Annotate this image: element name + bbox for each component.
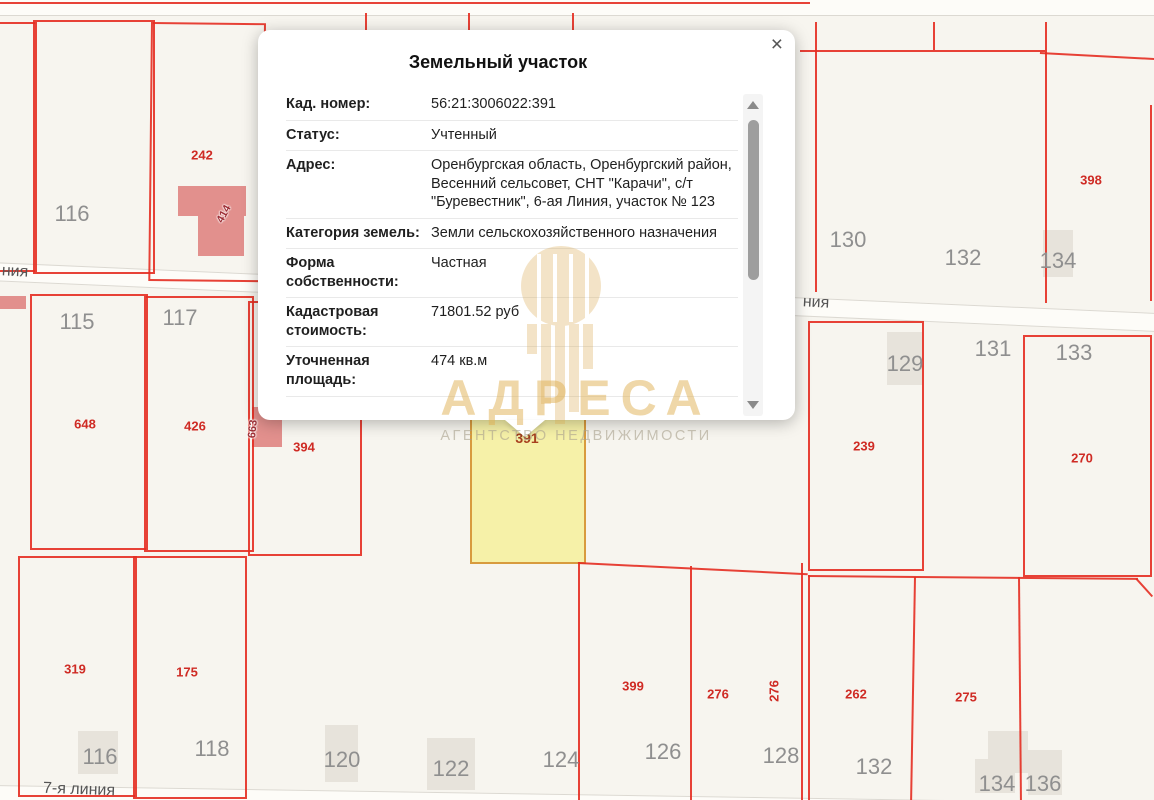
popup-fields: Кад. номер:56:21:3006022:391Статус:Учтен… <box>286 90 738 397</box>
parcel-number-gray: 134 <box>979 771 1016 797</box>
field-value: 474 кв.м <box>431 352 738 389</box>
popup-field-row: Адрес:Оренбургская область, Оренбургский… <box>286 151 738 219</box>
parcel-boundary <box>33 20 155 274</box>
parcel-boundary <box>468 13 470 30</box>
parcel-boundary <box>910 577 916 800</box>
field-label: Статус: <box>286 126 431 145</box>
parcel-boundary <box>18 556 137 797</box>
popup-field-row: Кадастровая стоимость:71801.52 руб <box>286 298 738 347</box>
parcel-number-red: 398 <box>1080 173 1102 188</box>
field-label: Кад. номер: <box>286 95 431 114</box>
scroll-up-icon[interactable] <box>747 101 759 109</box>
popup-field-row: Категория земель:Земли сельскохозяйствен… <box>286 219 738 250</box>
parcel-number-gray: 120 <box>324 747 361 773</box>
parcel-number-gray: 122 <box>433 756 470 782</box>
parcel-boundary <box>1150 105 1152 301</box>
field-label: Форма собственности: <box>286 254 431 291</box>
parcel-number-gray: 116 <box>82 744 117 770</box>
parcel-number-gray: 118 <box>194 736 229 762</box>
parcel-number-gray: 132 <box>945 245 982 271</box>
field-label: Кадастровая стоимость: <box>286 303 431 340</box>
parcel-number-gray: 126 <box>645 739 682 765</box>
field-label: Категория земель: <box>286 224 431 243</box>
field-value: 71801.52 руб <box>431 303 738 340</box>
parcel-number-red: 270 <box>1071 451 1093 466</box>
parcel-number-gray: 132 <box>856 754 893 780</box>
parcel-number-red: 426 <box>184 419 206 434</box>
parcel-boundary <box>815 22 817 292</box>
parcel-number-red: 262 <box>845 687 867 702</box>
parcel-number-red: 276 <box>707 687 729 702</box>
parcel-number-red: 275 <box>955 690 977 705</box>
parcel-info-popup: × Земельный участок Кад. номер:56:21:300… <box>258 30 795 420</box>
parcel-number-gray: 116 <box>54 201 89 227</box>
parcel-number-gray: 117 <box>162 305 197 331</box>
field-value: Частная <box>431 254 738 291</box>
parcel-boundary <box>1136 578 1154 597</box>
parcel-boundary <box>800 50 1045 52</box>
popup-field-row: Уточненная площадь:474 кв.м <box>286 347 738 396</box>
building-number: 663 <box>246 419 260 439</box>
parcel-number-gray: 134 <box>1040 248 1077 274</box>
field-value: Учтенный <box>431 126 738 145</box>
parcel-boundary <box>365 13 367 30</box>
parcel-boundary <box>0 2 810 4</box>
parcel-number-red: 648 <box>74 417 96 432</box>
parcel-number-red: 394 <box>293 440 315 455</box>
parcel-number-gray: 115 <box>59 309 94 335</box>
popup-field-row: Статус:Учтенный <box>286 121 738 152</box>
building-footprint <box>0 296 26 309</box>
field-label: Адрес: <box>286 156 431 212</box>
parcel-number-red: 242 <box>191 148 213 163</box>
parcel-number-gray: 136 <box>1025 771 1062 797</box>
parcel-boundary <box>801 563 803 800</box>
parcel-number-red: 319 <box>64 662 86 677</box>
parcel-number-gray: 124 <box>543 747 580 773</box>
parcel-boundary <box>572 13 574 30</box>
parcel-number-gray: 131 <box>975 336 1012 362</box>
parcel-number-red: 276 <box>767 680 782 702</box>
road-label: ния <box>1 262 28 281</box>
popup-title: Земельный участок <box>258 52 738 73</box>
parcel-boundary <box>933 22 935 50</box>
field-value: Земли сельскохозяйственного назначения <box>431 224 738 243</box>
parcel-number-gray: 129 <box>887 351 924 377</box>
parcel-boundary <box>1040 52 1154 60</box>
parcel-boundary <box>808 575 810 800</box>
road-label: 7-я линия <box>43 780 116 800</box>
parcel-number-red: 399 <box>622 679 644 694</box>
popup-pointer-tail <box>505 420 545 437</box>
parcel-number-gray: 133 <box>1056 340 1093 366</box>
parcel-number-red: 175 <box>176 665 198 680</box>
popup-scrollbar[interactable] <box>743 94 763 416</box>
field-value: 56:21:3006022:391 <box>431 95 738 114</box>
scroll-thumb[interactable] <box>748 120 759 280</box>
scroll-down-icon[interactable] <box>747 401 759 409</box>
parcel-number-gray: 130 <box>830 227 867 253</box>
parcel-boundary <box>0 22 37 272</box>
parcel-boundary <box>690 566 692 800</box>
parcel-number-gray: 128 <box>763 743 800 769</box>
road-label: ния <box>802 293 829 312</box>
close-icon[interactable]: × <box>771 34 783 55</box>
field-value: Оренбургская область, Оренбургский район… <box>431 156 738 212</box>
parcel-boundary <box>578 562 808 575</box>
field-label: Уточненная площадь: <box>286 352 431 389</box>
cadastral-map-app: 1161151171301321341291311331161181201221… <box>0 0 1154 800</box>
popup-field-row: Форма собственности:Частная <box>286 249 738 298</box>
popup-field-row: Кад. номер:56:21:3006022:391 <box>286 90 738 121</box>
parcel-number-red: 239 <box>853 439 875 454</box>
